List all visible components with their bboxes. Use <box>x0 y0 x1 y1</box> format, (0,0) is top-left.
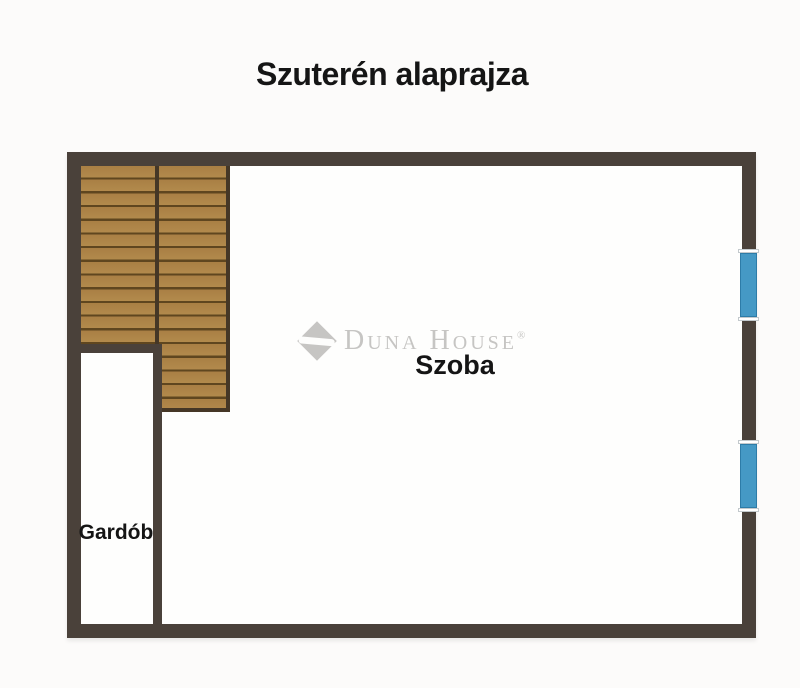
floorplan-page: Szuterén alaprajza Gardób Szoba Duna Hou… <box>0 0 800 688</box>
window-lower-right-icon <box>738 440 759 512</box>
staircase-right-flight-icon <box>155 166 230 412</box>
gardob-top-wall <box>67 344 162 353</box>
window-pane <box>740 444 757 508</box>
window-upper-right-icon <box>738 249 759 321</box>
watermark-brand-text: Duna House <box>344 325 517 356</box>
staircase-left-flight-icon <box>81 166 155 344</box>
logo-swoosh-icon <box>298 336 334 346</box>
window-pane <box>740 253 757 317</box>
page-title: Szuterén alaprajza <box>0 56 784 93</box>
registered-mark: ® <box>517 330 525 342</box>
gardob-room-label: Gardób <box>70 521 162 545</box>
duna-house-watermark: Duna House® <box>344 325 525 357</box>
window-cap <box>738 317 759 321</box>
window-cap <box>738 508 759 512</box>
gardob-right-wall <box>153 344 162 638</box>
